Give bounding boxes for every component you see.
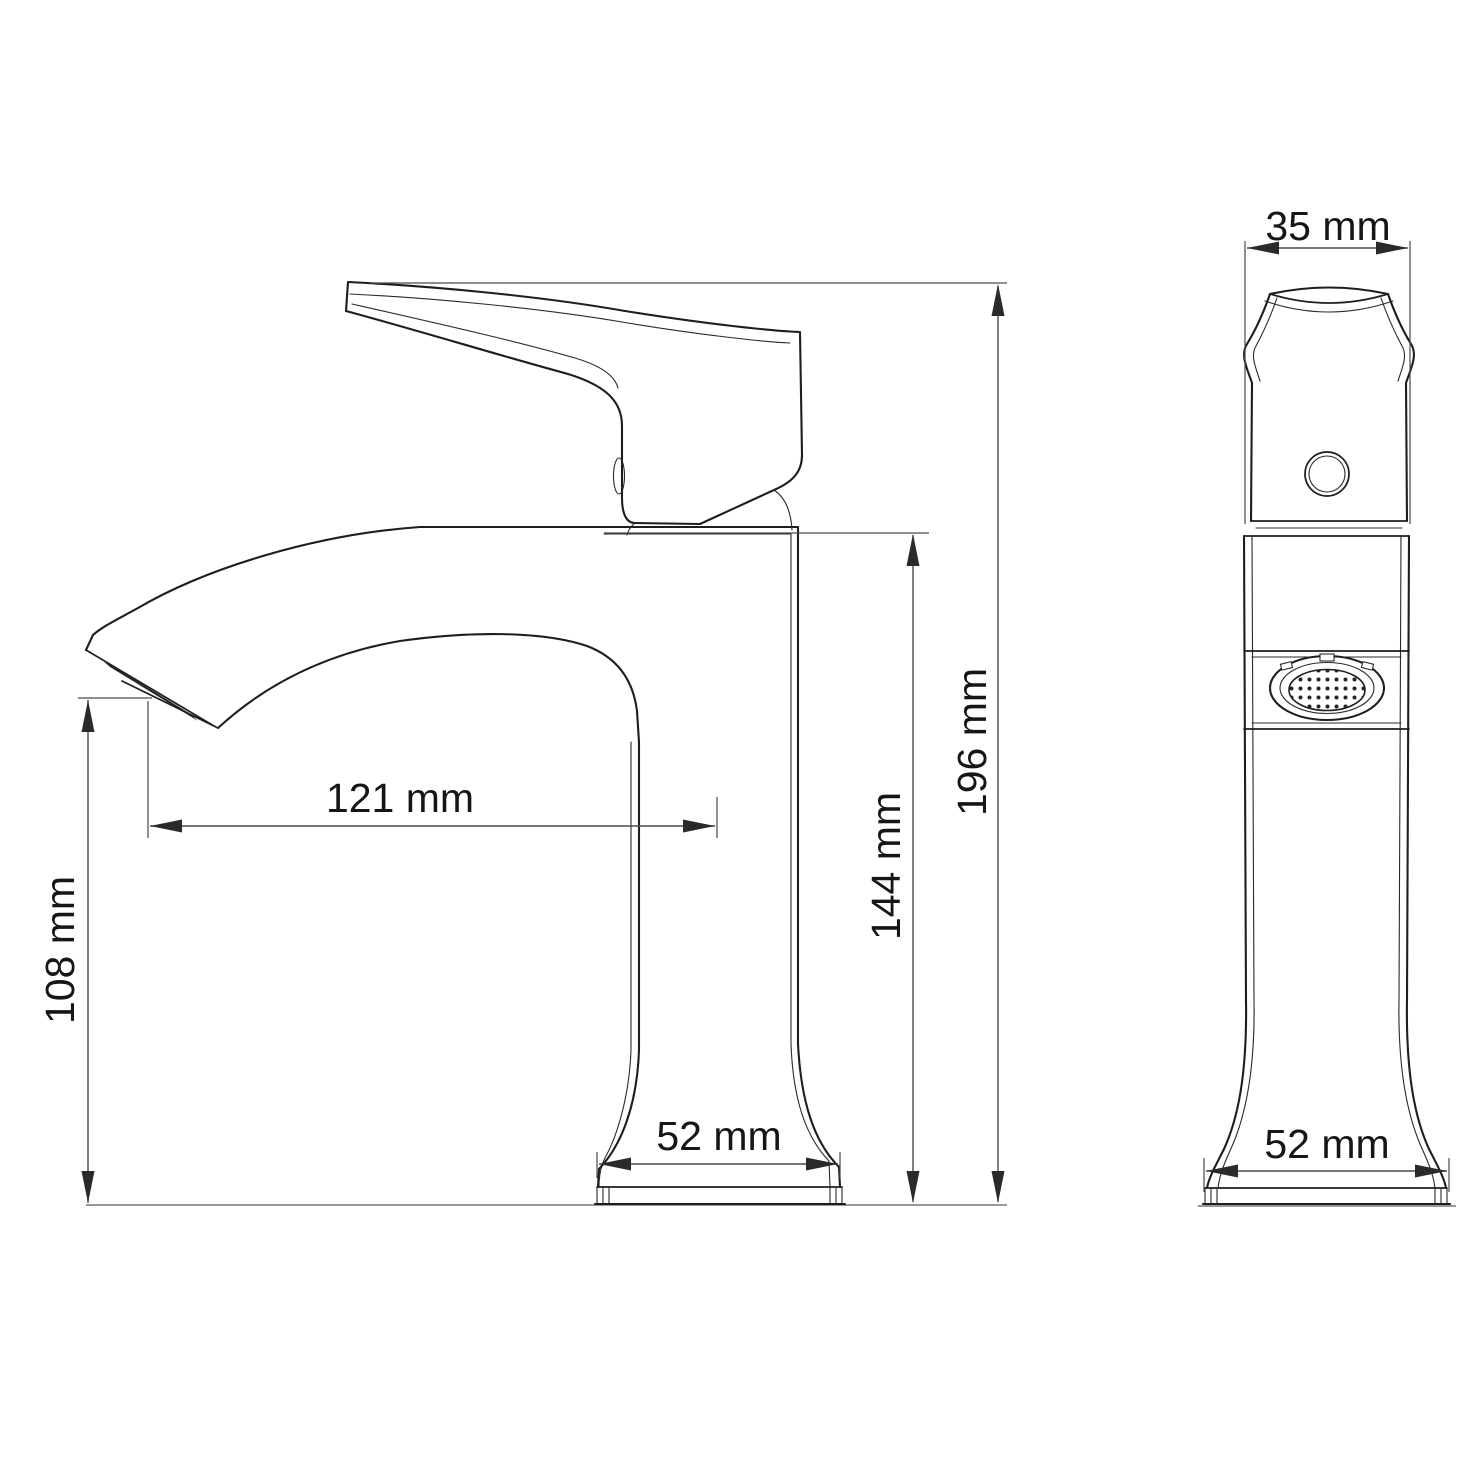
dimension-label: 196 mm xyxy=(949,668,995,816)
spout-tip-lower-edge xyxy=(122,681,218,728)
dimension-label: 35 mm xyxy=(1265,203,1390,249)
aerator-ring-notch-right xyxy=(1361,662,1373,670)
body-front xyxy=(1207,536,1446,1188)
arrow-up xyxy=(82,700,95,732)
spout-tip-face xyxy=(86,635,93,650)
arrow-up xyxy=(992,284,1005,316)
plinth-end-tabs xyxy=(1205,1188,1447,1204)
dimension-overall-height-196mm: 196 mm xyxy=(370,283,1007,1203)
dimension-spout-reach-121mm: 121 mm xyxy=(148,701,717,838)
handle-neck-curve xyxy=(774,490,792,530)
handle-button-inner xyxy=(1309,456,1345,492)
front-view: 35 mm 52 mm xyxy=(1203,203,1450,1204)
arrow-down xyxy=(992,1171,1005,1203)
arrow-left xyxy=(150,820,182,833)
body-back-edge xyxy=(798,527,840,1187)
body-right-edge xyxy=(1407,536,1446,1188)
base-plinth-front xyxy=(1203,1188,1450,1204)
handle-left-edge xyxy=(1244,294,1270,521)
spout-and-body xyxy=(86,527,840,1187)
dimension-handle-width-35mm: 35 mm xyxy=(1245,203,1410,524)
body-back-inner-edge xyxy=(791,534,830,1187)
handle-left-inner-edge xyxy=(1253,298,1277,381)
dimension-base-width-front-52mm: 52 mm xyxy=(1204,1121,1449,1192)
handle-cap-top-arc xyxy=(1270,288,1388,295)
arrow-down xyxy=(907,1171,920,1203)
aerator-mesh xyxy=(1289,670,1365,711)
arrow-up xyxy=(907,534,920,566)
dimension-outlet-height-108mm: 108 mm xyxy=(37,698,152,1203)
body-left-edge xyxy=(1207,536,1246,1188)
handle-underside-chamfer xyxy=(352,304,618,388)
plinth-end-tabs xyxy=(597,1187,842,1204)
aerator-ring-notch-left xyxy=(1280,662,1292,670)
handle-side xyxy=(346,282,802,535)
handle-button xyxy=(1305,452,1349,496)
arrow-down xyxy=(82,1171,95,1203)
base-plinth-side xyxy=(595,1187,845,1204)
technical-drawing-page: 196 mm 144 mm 121 mm 108 mm xyxy=(0,0,1480,1480)
spout-tip-upper-edge xyxy=(86,650,214,726)
spout-underside-and-pedestal-front xyxy=(218,634,639,1187)
ground-line xyxy=(86,1205,1456,1206)
dimension-label: 144 mm xyxy=(863,792,909,940)
aerator-front xyxy=(1270,654,1384,720)
spout-top-curve xyxy=(93,527,420,635)
handle-front xyxy=(1244,288,1414,529)
side-view: 196 mm 144 mm 121 mm 108 mm xyxy=(37,282,1007,1204)
dimension-base-width-side-52mm: 52 mm xyxy=(597,1113,840,1178)
dimension-label: 52 mm xyxy=(1264,1121,1389,1167)
dimension-label: 108 mm xyxy=(37,876,83,1024)
handle-cap-bottom-arc xyxy=(1270,294,1388,303)
faucet-dimension-drawing: 196 mm 144 mm 121 mm 108 mm xyxy=(0,0,1480,1480)
aerator-ring-notch-center xyxy=(1320,654,1334,661)
body-left-inner-edge xyxy=(1218,536,1254,1188)
arrow-right xyxy=(683,820,715,833)
dimension-body-top-height-144mm: 144 mm xyxy=(604,533,929,1203)
handle-right-inner-edge xyxy=(1381,298,1405,381)
dimension-label: 52 mm xyxy=(656,1113,781,1159)
dimension-label: 121 mm xyxy=(326,775,474,821)
body-right-inner-edge xyxy=(1399,536,1435,1188)
